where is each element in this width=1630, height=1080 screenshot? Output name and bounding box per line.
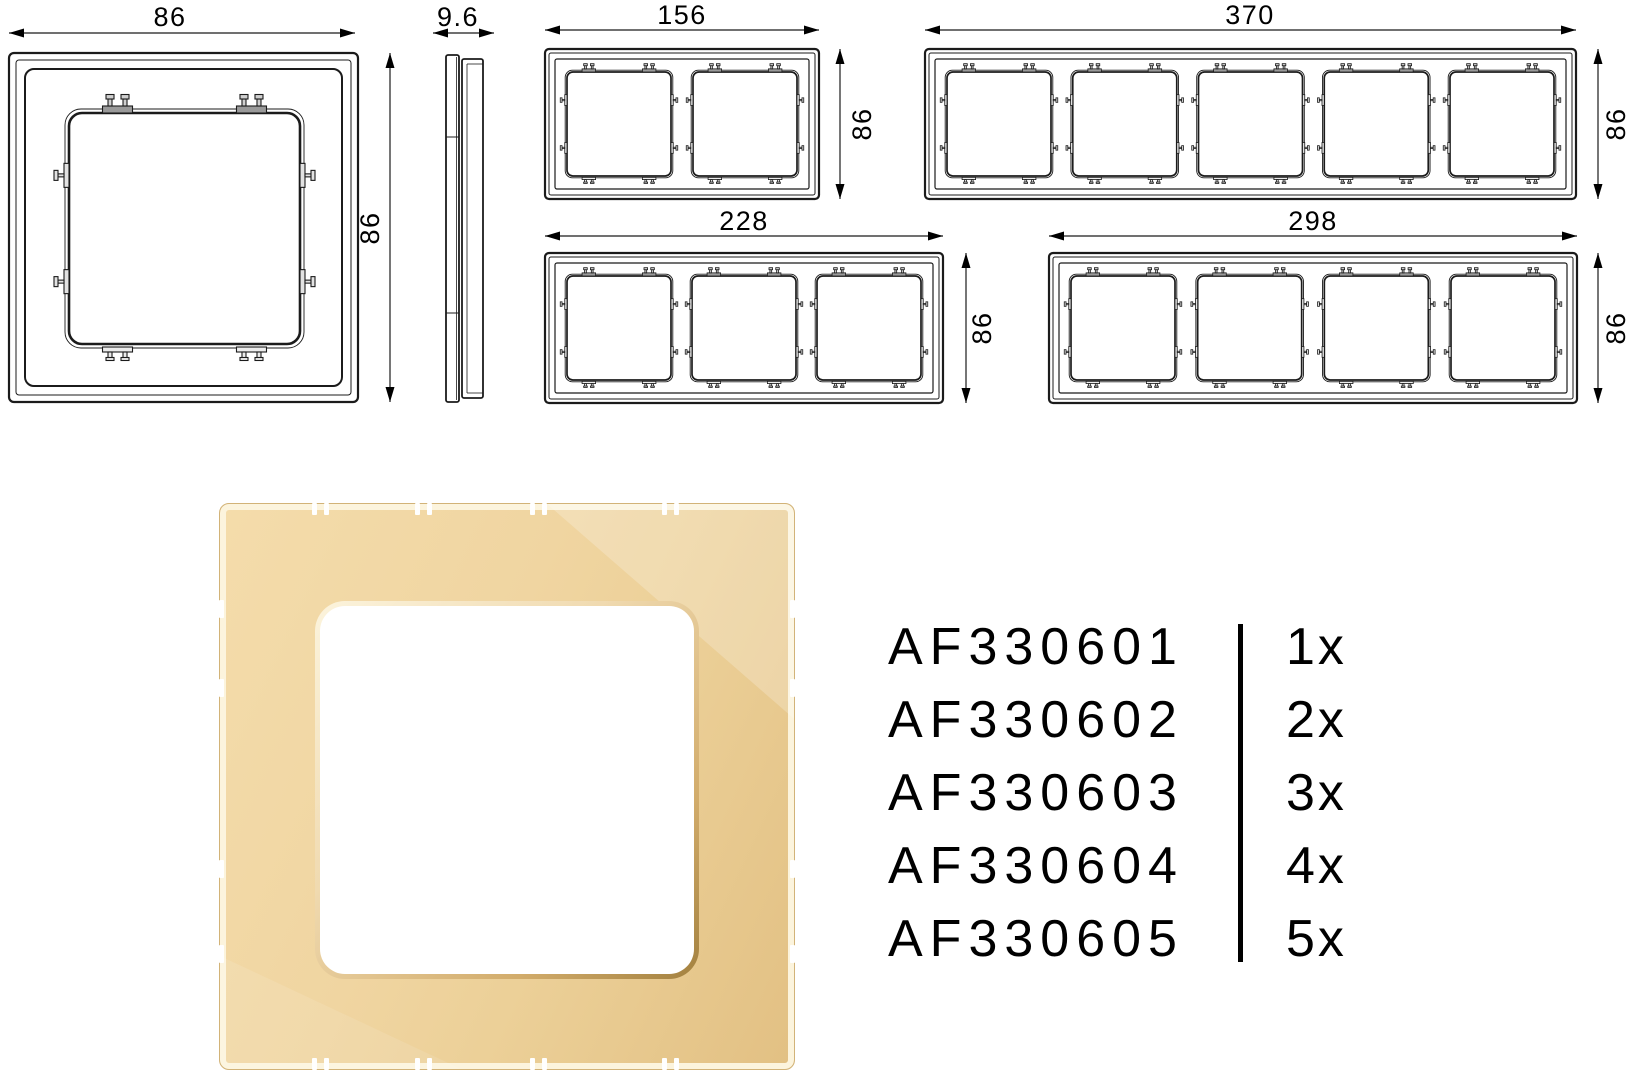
dim-3gang-width: 228: [719, 206, 769, 236]
dim-2gang-height: 86: [847, 107, 877, 140]
product-qty: 5x: [1238, 909, 1347, 969]
dim-side-depth: 9.6: [437, 2, 479, 32]
clip-notch: [324, 1058, 329, 1070]
product-qty: 3x: [1238, 763, 1347, 823]
product-code: AF330602: [888, 690, 1238, 750]
catalog-row: AF330603 3x: [888, 756, 1448, 829]
multigang-frame-drawings: [545, 26, 1603, 404]
module-opening: [320, 606, 694, 974]
catalog-row: AF330604 4x: [888, 829, 1448, 902]
clip-notch: [530, 1058, 535, 1070]
catalog-row: AF330602 2x: [888, 683, 1448, 756]
clip-notch: [662, 503, 667, 515]
frame-drawing-5gang: [925, 26, 1603, 200]
front-view-drawing: [9, 29, 395, 403]
clip-notch: [790, 860, 795, 878]
clip-notch: [790, 600, 795, 618]
dim-3gang-height: 86: [967, 311, 997, 344]
clip-notch: [219, 945, 224, 963]
clip-notch: [415, 1058, 420, 1070]
clip-notch: [674, 503, 679, 515]
product-code: AF330605: [888, 909, 1238, 969]
catalog-row: AF330605 5x: [888, 902, 1448, 975]
dim-2gang-width: 156: [657, 0, 707, 30]
dim-5gang-height: 86: [1601, 107, 1630, 140]
dim-front-width: 86: [153, 2, 186, 32]
dim-5gang-width: 370: [1225, 0, 1275, 30]
frame-drawing-4gang: [1049, 232, 1603, 404]
clip-notch: [312, 503, 317, 515]
clip-notch: [427, 503, 432, 515]
product-qty: 2x: [1238, 690, 1347, 750]
frame-datasheet: 86 86 9.6 156 86 370 86 228 86 298 86 AF…: [0, 0, 1630, 1080]
frame-drawing-2gang: [545, 26, 845, 200]
dim-4gang-height: 86: [1601, 311, 1630, 344]
technical-drawings: 86 86 9.6 156 86 370 86 228 86 298 86: [0, 0, 1630, 450]
clip-notch: [530, 503, 535, 515]
product-photo-gold-frame: [219, 503, 795, 1070]
clip-notch: [427, 1058, 432, 1070]
product-code: AF330601: [888, 617, 1238, 677]
catalog-list: AF330601 1x AF330602 2x AF330603 3x AF33…: [888, 610, 1448, 978]
clip-notch: [790, 945, 795, 963]
clip-notch: [324, 503, 329, 515]
clip-notch: [790, 679, 795, 697]
product-qty: 4x: [1238, 836, 1347, 896]
product-code: AF330603: [888, 763, 1238, 823]
dim-front-height: 86: [355, 211, 385, 244]
clip-notch: [415, 503, 420, 515]
clip-notch: [219, 679, 224, 697]
frame-drawing-3gang: [545, 232, 971, 404]
catalog-row: AF330601 1x: [888, 610, 1448, 683]
clip-notch: [312, 1058, 317, 1070]
product-qty: 1x: [1238, 617, 1347, 677]
clip-notch: [219, 600, 224, 618]
dim-4gang-width: 298: [1288, 206, 1338, 236]
module-opening-rim: [315, 601, 699, 979]
product-code: AF330604: [888, 836, 1238, 896]
clip-notch: [542, 1058, 547, 1070]
clip-notch: [674, 1058, 679, 1070]
clip-notch: [219, 860, 224, 878]
clip-notch: [542, 503, 547, 515]
side-view-drawing: [433, 29, 494, 403]
clip-notch: [662, 1058, 667, 1070]
